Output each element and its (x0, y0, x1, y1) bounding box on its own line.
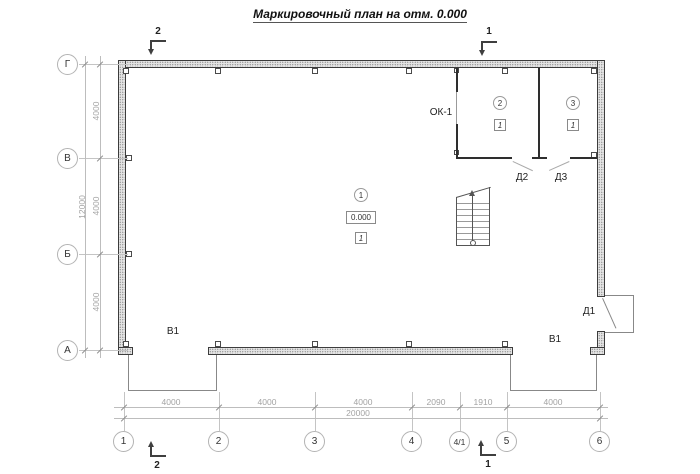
room-2-floor-type: 1 (494, 119, 506, 131)
wall-top (118, 60, 605, 68)
axis-col-ext-line (412, 392, 413, 431)
dim-left-total: 12000 (77, 187, 87, 227)
axis-row-line (79, 64, 128, 65)
dim-line-bottom-total (114, 418, 608, 419)
wall-right-upper (597, 60, 605, 297)
dim-bottom-total: 20000 (338, 408, 378, 418)
pilaster (502, 68, 508, 74)
stairs-right-edge (489, 187, 490, 246)
section-mark-line (150, 447, 152, 456)
inlet-v1-label-2: В1 (545, 334, 565, 345)
window-ok1-label: ОК-1 (427, 107, 455, 118)
stair-tread (457, 233, 489, 234)
pilaster (215, 341, 221, 347)
section-mark-line (481, 41, 497, 43)
pilaster (123, 68, 129, 74)
room2-bottom-wall (457, 157, 512, 159)
stair-tread (457, 209, 489, 210)
section-mark-line (150, 455, 166, 457)
wall-bottom-right (590, 347, 605, 355)
section-arrow-icon (478, 440, 484, 446)
porch-left (128, 355, 217, 391)
dim-left-3: 4000 (91, 282, 101, 322)
section-mark-line (150, 40, 166, 42)
section-mark-line (480, 454, 496, 456)
door-d1-label: Д1 (579, 306, 599, 317)
dim-bottom-5: 1910 (463, 397, 503, 407)
section-mark-2-top-label: 2 (151, 26, 165, 37)
door-d2-label: Д2 (512, 172, 532, 183)
dim-bottom-6: 4000 (533, 397, 573, 407)
axis-col-ext-line (600, 392, 601, 431)
pilaster (215, 68, 221, 74)
drawing-title: Маркировочный план на отм. 0.000 (210, 5, 510, 23)
stair-tread (457, 203, 489, 204)
partition-ok1-upper (456, 68, 458, 92)
stairs-direction-line (472, 196, 473, 242)
wall-bottom-left (118, 347, 133, 355)
axis-circle-row-v: В (57, 148, 78, 169)
section-mark-line (480, 446, 482, 455)
door-d3-label: Д3 (551, 172, 571, 183)
door-d3-leader (549, 161, 570, 171)
section-mark-1-bottom-label: 1 (481, 459, 495, 470)
section-arrow-icon (148, 441, 154, 447)
wall-left (118, 60, 126, 355)
room-1-elevation: 0.000 (346, 211, 376, 224)
axis-circle-col-6: 6 (589, 431, 610, 452)
stair-tread (457, 221, 489, 222)
axis-circle-row-a: А (57, 340, 78, 361)
pilaster (406, 68, 412, 74)
stairs-start-dot (470, 240, 476, 246)
section-mark-line (150, 40, 152, 49)
porch-middle (510, 355, 597, 391)
window-ok1 (456, 92, 457, 124)
pilaster (406, 341, 412, 347)
axis-circle-col-5: 5 (496, 431, 517, 452)
axis-circle-col-3: 3 (304, 431, 325, 452)
axis-circle-col-4-1: 4/1 (449, 431, 470, 452)
wall-bottom-middle (208, 347, 513, 355)
stair-tread (457, 215, 489, 216)
axis-circle-col-2: 2 (208, 431, 229, 452)
axis-row-line (79, 350, 128, 351)
pilaster (502, 341, 508, 347)
axis-col-ext-line (124, 392, 125, 431)
drawing-title-text: Маркировочный план на отм. 0.000 (253, 7, 467, 23)
axis-circle-col-1: 1 (113, 431, 134, 452)
axis-circle-row-g: Г (57, 54, 78, 75)
dim-bottom-3: 4000 (343, 397, 383, 407)
section-arrow-icon (148, 49, 154, 55)
room-3-floor-type: 1 (567, 119, 579, 131)
axis-col-ext-line (219, 392, 220, 431)
dim-left-1: 4000 (91, 91, 101, 131)
stairs-up-arrow-icon (469, 190, 475, 196)
axis-col-ext-line (507, 392, 508, 431)
room-1-floor-type: 1 (355, 232, 367, 244)
dim-bottom-2: 4000 (247, 397, 287, 407)
room-2-number: 2 (493, 96, 507, 110)
section-mark-1-top-label: 1 (482, 26, 496, 37)
pilaster (123, 341, 129, 347)
section-arrow-icon (479, 50, 485, 56)
axis-col-ext-line (460, 392, 461, 431)
inlet-v1-label-1: В1 (163, 326, 183, 337)
pilaster (312, 68, 318, 74)
pilaster (312, 341, 318, 347)
door-d2-leader (513, 161, 533, 171)
section-mark-2-bottom-label: 2 (150, 460, 164, 471)
axis-circle-col-4: 4 (401, 431, 422, 452)
dim-left-2: 4000 (91, 186, 101, 226)
axis-circle-row-b: Б (57, 244, 78, 265)
partition-ok1-lower (456, 124, 458, 159)
section-mark-line (481, 41, 483, 50)
room-3-number: 3 (566, 96, 580, 110)
partition-t-cap (532, 157, 547, 159)
partition-rooms-2-3 (538, 68, 540, 159)
floor-plan-canvas: Маркировочный план на отм. 0.000 (0, 0, 700, 474)
porch-right (605, 295, 634, 333)
dim-bottom-4: 2090 (416, 397, 456, 407)
room-1-number: 1 (354, 188, 368, 202)
axis-col-ext-line (315, 392, 316, 431)
stair-tread (457, 227, 489, 228)
pilaster (591, 68, 597, 74)
dim-bottom-1: 4000 (151, 397, 191, 407)
room3-bottom-wall (570, 157, 597, 159)
axis-row-line (79, 158, 128, 159)
axis-row-line (79, 254, 128, 255)
